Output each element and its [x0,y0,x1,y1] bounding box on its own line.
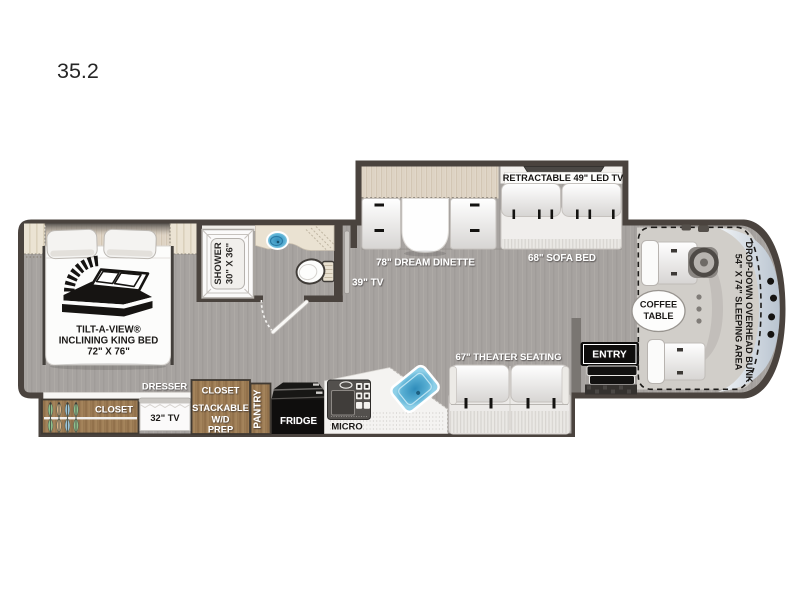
svg-text:TILT-A-VIEW®: TILT-A-VIEW® [76,325,141,336]
svg-text:COFFEE: COFFEE [640,300,677,310]
svg-text:DRESSER: DRESSER [142,381,188,392]
svg-text:72" X 76": 72" X 76" [87,347,130,358]
svg-text:54" X 74" SLEEPING AREA: 54" X 74" SLEEPING AREA [734,254,744,371]
svg-text:67" THEATER SEATING: 67" THEATER SEATING [455,352,561,363]
svg-text:SHOWER: SHOWER [212,242,223,284]
svg-text:78" DREAM DINETTE: 78" DREAM DINETTE [376,258,475,269]
svg-text:PREP: PREP [208,425,233,435]
svg-text:MICRO: MICRO [331,421,362,432]
svg-text:CLOSET: CLOSET [202,386,240,396]
svg-text:STACKABLE: STACKABLE [192,403,249,413]
svg-text:RETRACTABLE 49" LED TV: RETRACTABLE 49" LED TV [503,173,624,183]
svg-text:CLOSET: CLOSET [95,404,133,415]
svg-text:INCLINING KING BED: INCLINING KING BED [59,336,159,347]
svg-text:W/D: W/D [211,415,229,425]
svg-text:39" TV: 39" TV [352,278,384,289]
svg-text:PANTRY: PANTRY [253,389,264,429]
svg-text:32" TV: 32" TV [150,413,180,423]
svg-text:DROP-DOWN OVERHEAD BUNK: DROP-DOWN OVERHEAD BUNK [744,242,754,383]
svg-text:ENTRY: ENTRY [592,349,627,360]
svg-text:35.2: 35.2 [57,59,99,83]
svg-text:FRIDGE: FRIDGE [280,416,317,427]
svg-text:68" SOFA BED: 68" SOFA BED [528,253,596,264]
svg-text:TABLE: TABLE [644,311,674,321]
svg-text:30" X 36": 30" X 36" [224,243,235,284]
